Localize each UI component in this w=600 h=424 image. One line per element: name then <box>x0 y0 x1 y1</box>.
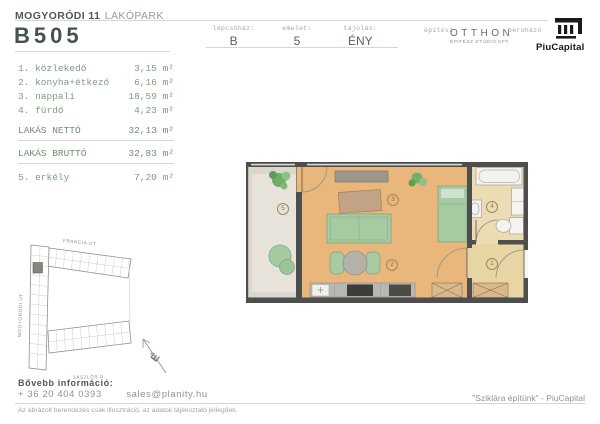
architect-label: építész <box>424 27 453 34</box>
room-name: 1. közlekedő <box>18 62 86 76</box>
developer-label: beruházó <box>508 27 542 34</box>
total-area: 32,13 m² <box>128 124 174 137</box>
apartment-datasheet: MOGYORÓDI 11 LAKÓPARK B505 lépcsőház: B … <box>0 0 600 424</box>
room-row-korlekedo: 1. közlekedő 3,15 m² <box>18 62 174 76</box>
room-row-nappali: 3. nappali 18,59 m² <box>18 90 174 104</box>
total-gross-row: LAKÁS BRUTTÓ 32,83 m² <box>18 147 174 164</box>
plan-label-balcony: 5 <box>277 203 289 215</box>
dining-set <box>330 251 380 275</box>
field-staircase: lépcsőház: B <box>202 25 265 48</box>
bath-door-opening <box>476 240 498 245</box>
room-area: 3,15 m² <box>134 62 174 76</box>
developer-name: PiuCapital <box>536 42 584 53</box>
pillow <box>441 189 465 199</box>
room-row-konyha: 2. konyha+étkező 6,16 m² <box>18 76 174 90</box>
field-staircase-value: B <box>202 34 265 48</box>
unit-fields: lépcsőház: B emelet: 5 tájolás: ÉNY <box>202 25 392 48</box>
room-name: 2. konyha+étkező <box>18 76 109 90</box>
total-name: LAKÁS NETTÓ <box>18 124 81 137</box>
room-area: 18,59 m² <box>128 90 174 104</box>
architect-logo-text: OTTHON <box>450 28 513 39</box>
balcony-window <box>251 164 295 166</box>
room-area: 7,20 m² <box>134 171 174 185</box>
wood-table <box>338 190 381 214</box>
tv-console <box>335 171 388 182</box>
field-floor-value: 5 <box>265 34 328 48</box>
north-arrow-icon: É <box>143 339 166 373</box>
bathtub <box>476 168 522 186</box>
plan-label-living: 3 <box>387 194 399 206</box>
architect-subtitle: ÉPÍTÉSZ STÚDIÓ KFT. <box>450 40 510 45</box>
bed <box>438 186 467 242</box>
plan-label-kitchen: 2 <box>386 259 398 271</box>
footer-divider <box>15 403 585 404</box>
wardrobe <box>432 283 462 298</box>
building-top-wing <box>47 248 131 278</box>
room-area: 6,16 m² <box>134 76 174 90</box>
street-label-left: MOGYORÓDI ÚT <box>16 293 24 337</box>
kitchen-counter <box>310 283 415 297</box>
footer-slogan: "Sziklára építünk" - PiuCapital <box>365 393 585 403</box>
header-divider <box>15 20 548 21</box>
highlighted-unit <box>33 263 43 274</box>
site-plan: FRANCIA ÚT MOGYORÓDI ÚT ZÁSZLÓS U. É <box>15 233 187 385</box>
wardrobe <box>473 283 508 298</box>
plan-label-entry: 1 <box>486 258 498 270</box>
footer-contacts: + 36 20 404 0393 sales@planity.hu <box>18 389 208 400</box>
plan-label-bath: 4 <box>486 201 498 213</box>
page-title: MOGYORÓDI 11 LAKÓPARK <box>15 6 164 24</box>
room-area: 4,23 m² <box>134 104 174 118</box>
field-orientation-value: ÉNY <box>329 34 392 48</box>
room-name: 3. nappali <box>18 90 75 104</box>
footer-disclaimer: Az ábrázolt berendezés csak illusztráció… <box>18 407 238 414</box>
unit-id: B505 <box>14 23 83 49</box>
footer-info-label: Bővebb információ: <box>18 378 113 388</box>
field-staircase-label: lépcsőház: <box>202 25 265 32</box>
room-list: 1. közlekedő 3,15 m² 2. konyha+étkező 6,… <box>18 62 174 185</box>
unit-id-underline <box>15 51 170 52</box>
total-net-row: LAKÁS NETTÓ 32,13 m² <box>18 124 174 141</box>
sofa <box>327 214 391 243</box>
stove <box>347 285 373 297</box>
street-label-top: FRANCIA ÚT <box>63 237 97 246</box>
piucapital-logo-icon <box>552 16 585 43</box>
fields-underline <box>206 47 398 48</box>
field-floor: emelet: 5 <box>265 25 328 48</box>
total-area: 32,83 m² <box>128 147 174 160</box>
bathroom-cabinet <box>512 188 525 215</box>
toilet <box>496 218 524 235</box>
living-window <box>307 164 462 166</box>
total-name: LAKÁS BRUTTÓ <box>18 147 86 160</box>
balcony-row: 5. erkély 7,20 m² <box>18 171 174 185</box>
field-orientation-label: tájolás: <box>329 25 392 32</box>
room-name: 4. fürdő <box>18 104 64 118</box>
floor-plan <box>240 146 534 308</box>
field-orientation: tájolás: ÉNY <box>329 25 392 48</box>
compass-letter: É <box>148 351 163 365</box>
balcony-door-opening <box>297 167 303 192</box>
fridge <box>389 285 411 297</box>
email-link[interactable]: sales@planity.hu <box>126 389 207 400</box>
phone-number[interactable]: + 36 20 404 0393 <box>18 389 102 400</box>
room-row-furdo: 4. fürdő 4,23 m² <box>18 104 174 118</box>
field-floor-label: emelet: <box>265 25 328 32</box>
living-entry-opening <box>467 248 472 278</box>
dining-table <box>343 251 367 275</box>
room-name: 5. erkély <box>18 171 69 185</box>
